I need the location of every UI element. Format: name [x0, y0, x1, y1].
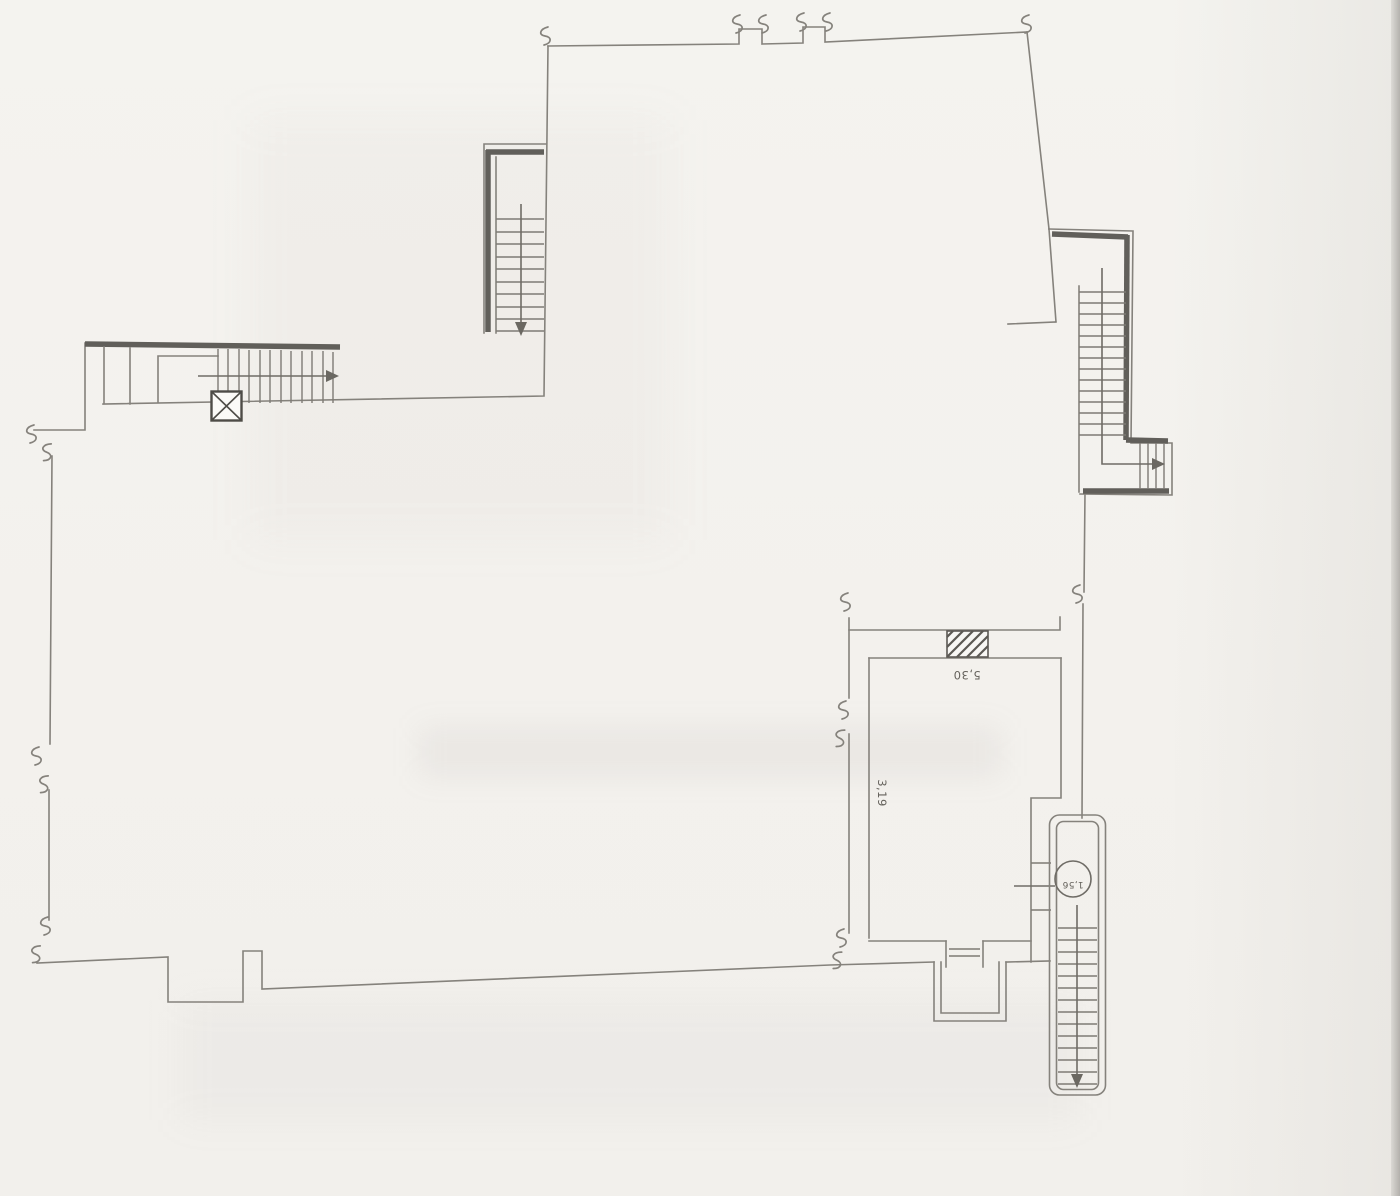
- building-outline: [34, 27, 1085, 1002]
- stair-marker-label: 1,56: [1062, 879, 1083, 889]
- stair-thick-top: [1052, 234, 1128, 237]
- entrance-porch: [934, 941, 1006, 1021]
- stair-landing-walls: [104, 347, 130, 404]
- porch-outer-wall: [934, 962, 1006, 1021]
- hatched-wall-block: [947, 631, 988, 657]
- stair-treads: [496, 219, 544, 331]
- stair-thick-east: [1126, 235, 1127, 440]
- stair-direction-arrow-icon: [515, 322, 527, 336]
- scanned-floor-plan-sheet: 5,30 3,19 1,56: [0, 0, 1400, 1196]
- step-side-walls: [946, 941, 983, 967]
- wall-north: [548, 27, 1027, 46]
- stair-treads: [1079, 292, 1164, 489]
- wall-far-west: [34, 343, 85, 920]
- break-marks: [27, 13, 1082, 970]
- wall-northeast: [1027, 32, 1049, 229]
- stair-thick-jog: [1126, 440, 1168, 441]
- entrance-steps: [949, 949, 980, 956]
- stair-wall: [85, 344, 340, 347]
- porch-inner-wall: [941, 962, 999, 1013]
- stair-outer-wall: [484, 144, 546, 333]
- dimension-labels: 5,30 3,19 1,56: [875, 668, 1084, 889]
- top-center-stair: [484, 144, 546, 336]
- basement-stair-shaft: [1050, 815, 1106, 1095]
- right-stair: [1008, 229, 1172, 495]
- stair-direction-arrow-icon: [1152, 458, 1165, 470]
- dimension-label-room-width: 5,30: [953, 668, 981, 682]
- wall-west-upper: [103, 46, 548, 404]
- stair-outline: [1049, 229, 1172, 495]
- stair-west-edge: [1008, 229, 1056, 324]
- floor-plan-canvas: 5,30 3,19 1,56: [0, 0, 1400, 1196]
- stair-direction-arrow-icon: [1071, 1074, 1083, 1088]
- dimension-label-room-depth: 3,19: [875, 779, 889, 807]
- section-north-wall: [849, 617, 1060, 630]
- column-symbol: [212, 392, 242, 421]
- wall-east: [1082, 493, 1085, 818]
- stair-landing-inner: [158, 356, 218, 402]
- top-left-stair: [85, 344, 340, 421]
- stair-marker-circle: [1055, 861, 1091, 897]
- wall-south: [37, 951, 1050, 1002]
- scan-edge-shadow: [1391, 0, 1400, 1196]
